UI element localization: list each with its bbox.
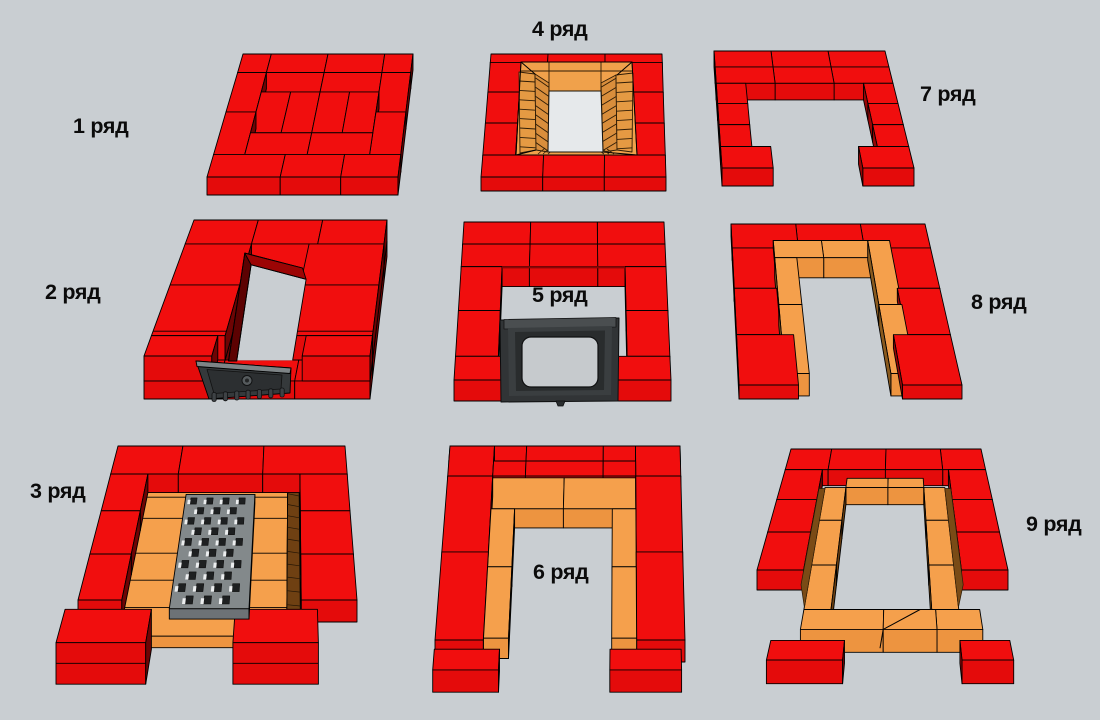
svg-text:4 ряд: 4 ряд — [532, 17, 588, 41]
svg-text:9 ряд: 9 ряд — [1026, 512, 1082, 536]
svg-text:2 ряд: 2 ряд — [45, 280, 101, 304]
svg-text:5 ряд: 5 ряд — [532, 283, 588, 307]
svg-text:6 ряд: 6 ряд — [533, 560, 589, 584]
svg-text:7 ряд: 7 ряд — [920, 82, 976, 106]
svg-text:1 ряд: 1 ряд — [73, 114, 129, 138]
svg-text:3 ряд: 3 ряд — [30, 479, 86, 503]
svg-text:8 ряд: 8 ряд — [971, 290, 1027, 314]
